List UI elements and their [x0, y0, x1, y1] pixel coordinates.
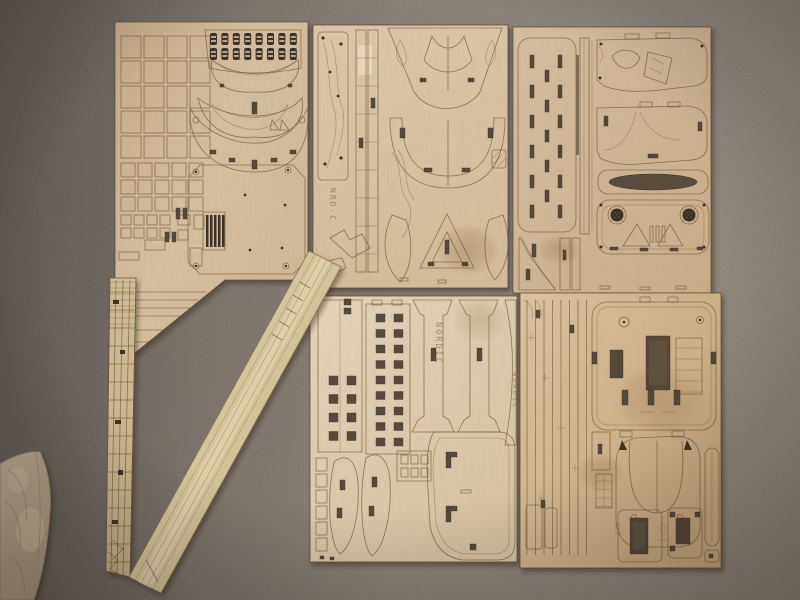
photo-model-kit: NRD-C — [0, 0, 800, 600]
engraving-sheet-code: NRD-C — [328, 188, 337, 222]
dark-rod — [576, 55, 579, 155]
engraving-nordic-2: NORDIC — [511, 372, 519, 409]
photo-canvas: NRD-C — [0, 0, 800, 600]
oval-cutout — [609, 174, 697, 190]
tape-patch — [358, 45, 372, 75]
